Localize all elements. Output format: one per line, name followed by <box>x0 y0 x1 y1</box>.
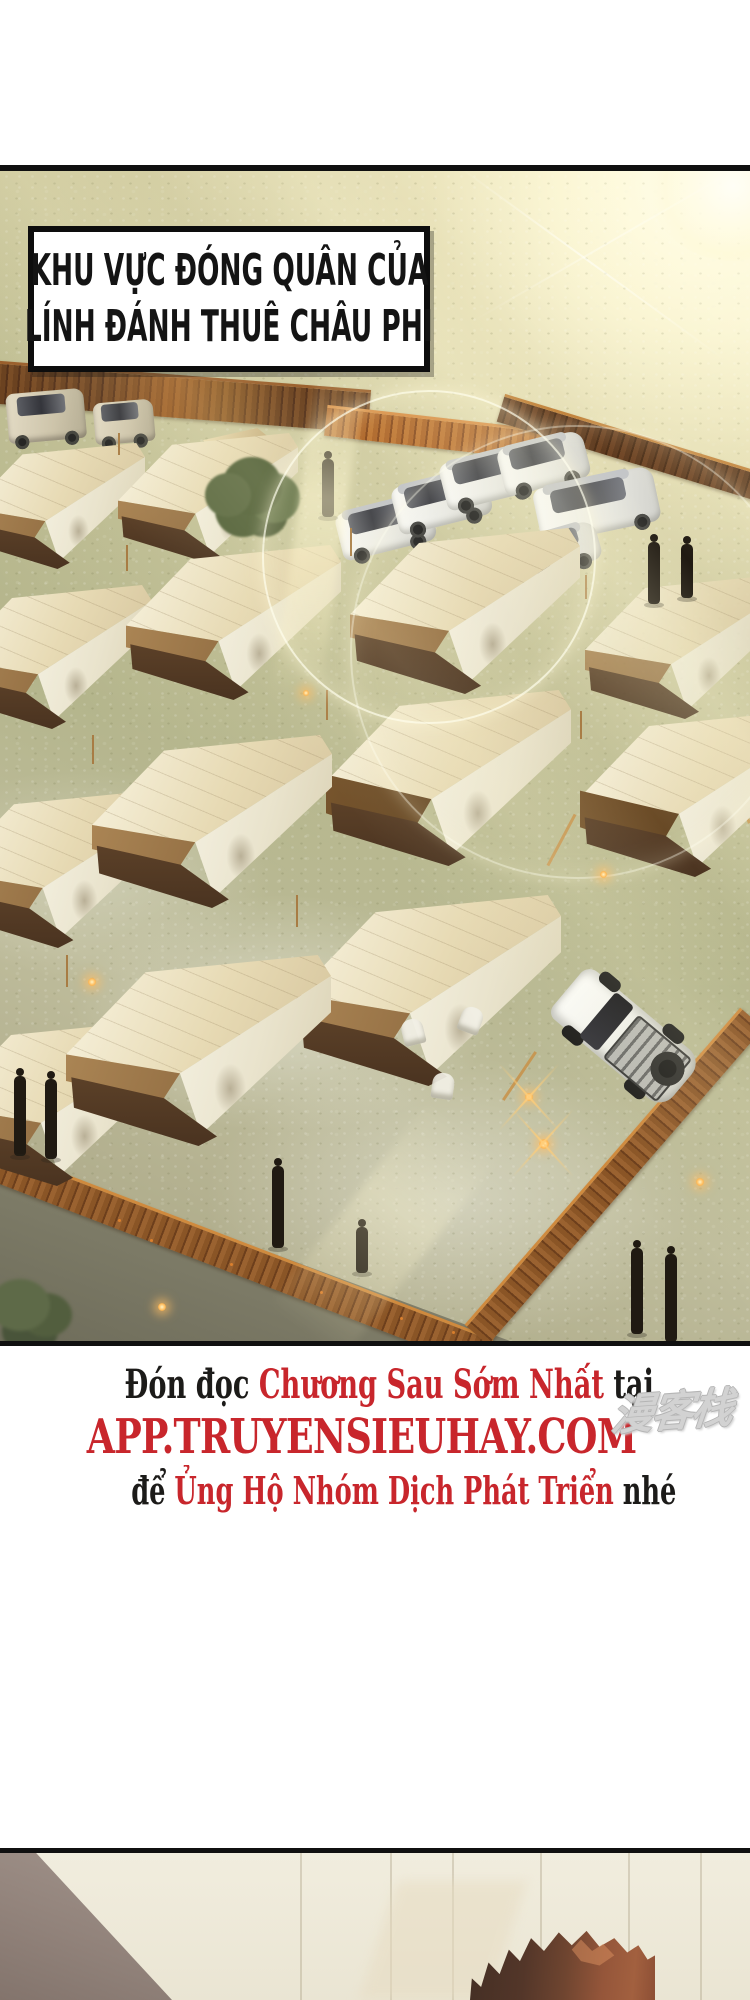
tree <box>205 473 251 517</box>
caption-line-2: LÍNH ĐÁNH THUÊ CHÂU PHI <box>25 299 433 355</box>
tent <box>296 895 561 1086</box>
person-silhouette <box>665 1254 677 1342</box>
promo-segment: Chương Sau Sớm Nhất <box>259 1361 604 1408</box>
promo-segment: để <box>131 1468 174 1513</box>
driving-suv <box>548 961 708 1111</box>
caption-line-1: KHU VỰC ĐÓNG QUÂN CỦA <box>30 243 428 299</box>
person-silhouette <box>631 1248 643 1334</box>
wall-seam <box>700 1853 702 2000</box>
wall-corner-shadow <box>0 1853 172 2000</box>
manga-page: KHU VỰC ĐÓNG QUÂN CỦA LÍNH ĐÁNH THUÊ CHÂ… <box>0 0 750 2000</box>
promo-segment: nhé <box>614 1468 677 1513</box>
wall-seam <box>300 1853 302 2000</box>
watermark-logo: 漫客栈 <box>609 1374 735 1444</box>
camp-chair <box>430 1072 455 1101</box>
tent <box>66 955 331 1146</box>
promo-line: để Ủng Hộ Nhóm Dịch Phát Triển nhé <box>0 1466 524 1516</box>
person-silhouette <box>322 459 334 517</box>
promo-segment: Ủng Hộ Nhóm Dịch Phát Triển <box>174 1468 613 1513</box>
tent <box>92 735 332 908</box>
caption-box: KHU VỰC ĐÓNG QUÂN CỦA LÍNH ĐÁNH THUÊ CHÂ… <box>28 226 430 372</box>
person-silhouette <box>272 1166 284 1248</box>
person-silhouette <box>14 1076 26 1156</box>
person-silhouette <box>45 1079 57 1159</box>
tent <box>326 690 571 866</box>
tent <box>580 711 750 877</box>
person-silhouette <box>681 544 693 598</box>
panel-camp-aerial: KHU VỰC ĐÓNG QUÂN CỦA LÍNH ĐÁNH THUÊ CHÂ… <box>0 165 750 1346</box>
tent <box>350 528 580 694</box>
promo-segment: Đón đọc <box>125 1361 259 1408</box>
parked-suv <box>2 380 89 451</box>
person-silhouette <box>648 542 660 604</box>
tent <box>126 545 341 700</box>
promo-segment: APP.TRUYENSIEUHAY.COM <box>87 1409 637 1465</box>
promo-line: Đón đọc Chương Sau Sớm Nhất tại <box>0 1362 524 1408</box>
person-silhouette <box>356 1227 368 1273</box>
panel-indoor-scene <box>0 1848 750 2000</box>
promo-text-block: Đón đọc Chương Sau Sớm Nhất tạiAPP.TRUYE… <box>0 1362 524 1516</box>
promo-line: APP.TRUYENSIEUHAY.COM <box>0 1408 524 1466</box>
tent <box>585 575 750 719</box>
